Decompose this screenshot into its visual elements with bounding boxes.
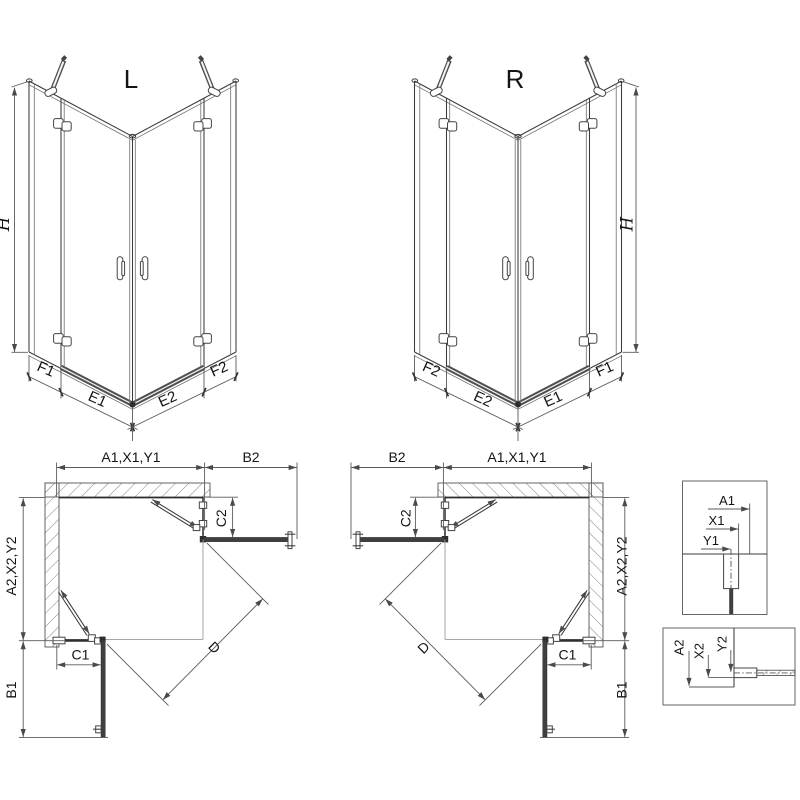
technical-drawing-page: L H F1 E1 E2 F2 R H F2 E2 E1 F1 A1,X1,Y1… [0, 0, 800, 800]
detail-inset-top: A1 X1 Y1 [683, 481, 768, 615]
plan-r-c2: C2 [398, 509, 414, 527]
elevation-left-variant: L H F1 E1 E2 F2 [0, 55, 239, 441]
elevation-geometry-r [412, 55, 639, 441]
plan-right-variant: B2 A1,X1,Y1 C2 A2,X2,Y2 B1 C1 D [351, 449, 630, 738]
plan-geometry-r [351, 463, 629, 738]
plan-r-b1: B1 [614, 681, 630, 698]
dim-f2-l: F2 [208, 358, 231, 381]
shower-enclosure-diagram: L H F1 E1 E2 F2 R H F2 E2 E1 F1 A1,X1,Y1… [0, 0, 800, 800]
variant-label-r: R [506, 64, 525, 94]
dim-f1-r: F1 [593, 358, 616, 381]
inset-y1-label: Y1 [703, 533, 719, 548]
dim-f1-l: F1 [34, 358, 57, 381]
height-label-l: H [0, 216, 13, 232]
detail-inset-bottom: A2 X2 Y2 [663, 628, 795, 705]
plan-r-top-width: A1,X1,Y1 [487, 449, 546, 465]
inset-y2-label: Y2 [715, 636, 730, 652]
plan-l-b2: B2 [242, 449, 259, 465]
plan-geometry-l [19, 463, 297, 738]
plan-l-b1: B1 [3, 681, 19, 698]
plan-left-variant: A1,X1,Y1 B2 C2 A2,X2,Y2 B1 C1 D [3, 449, 297, 738]
inset-x2-label: X2 [692, 643, 707, 659]
wall-profile-section [724, 554, 739, 589]
dim-f2-r: F2 [420, 358, 443, 381]
inset-a1-label: A1 [719, 493, 735, 508]
plan-l-side-depth: A2,X2,Y2 [3, 536, 19, 595]
height-label-r: H [618, 216, 637, 232]
plan-l-c1: C1 [72, 647, 90, 663]
elevation-geometry-l [12, 55, 239, 441]
plan-r-b2: B2 [388, 449, 405, 465]
plan-l-top-width: A1,X1,Y1 [101, 449, 160, 465]
glass-edge-section [729, 589, 733, 614]
inset-a2-label: A2 [672, 640, 687, 656]
plan-r-diagonal: D [414, 638, 432, 656]
variant-label-l: L [124, 64, 138, 94]
elevation-right-variant: R H F2 E2 E1 F1 [412, 55, 639, 441]
inset-x1-label: X1 [709, 513, 725, 528]
plan-l-c2: C2 [213, 509, 229, 527]
plan-r-c1: C1 [559, 647, 577, 663]
plan-r-side-depth: A2,X2,Y2 [614, 536, 630, 595]
